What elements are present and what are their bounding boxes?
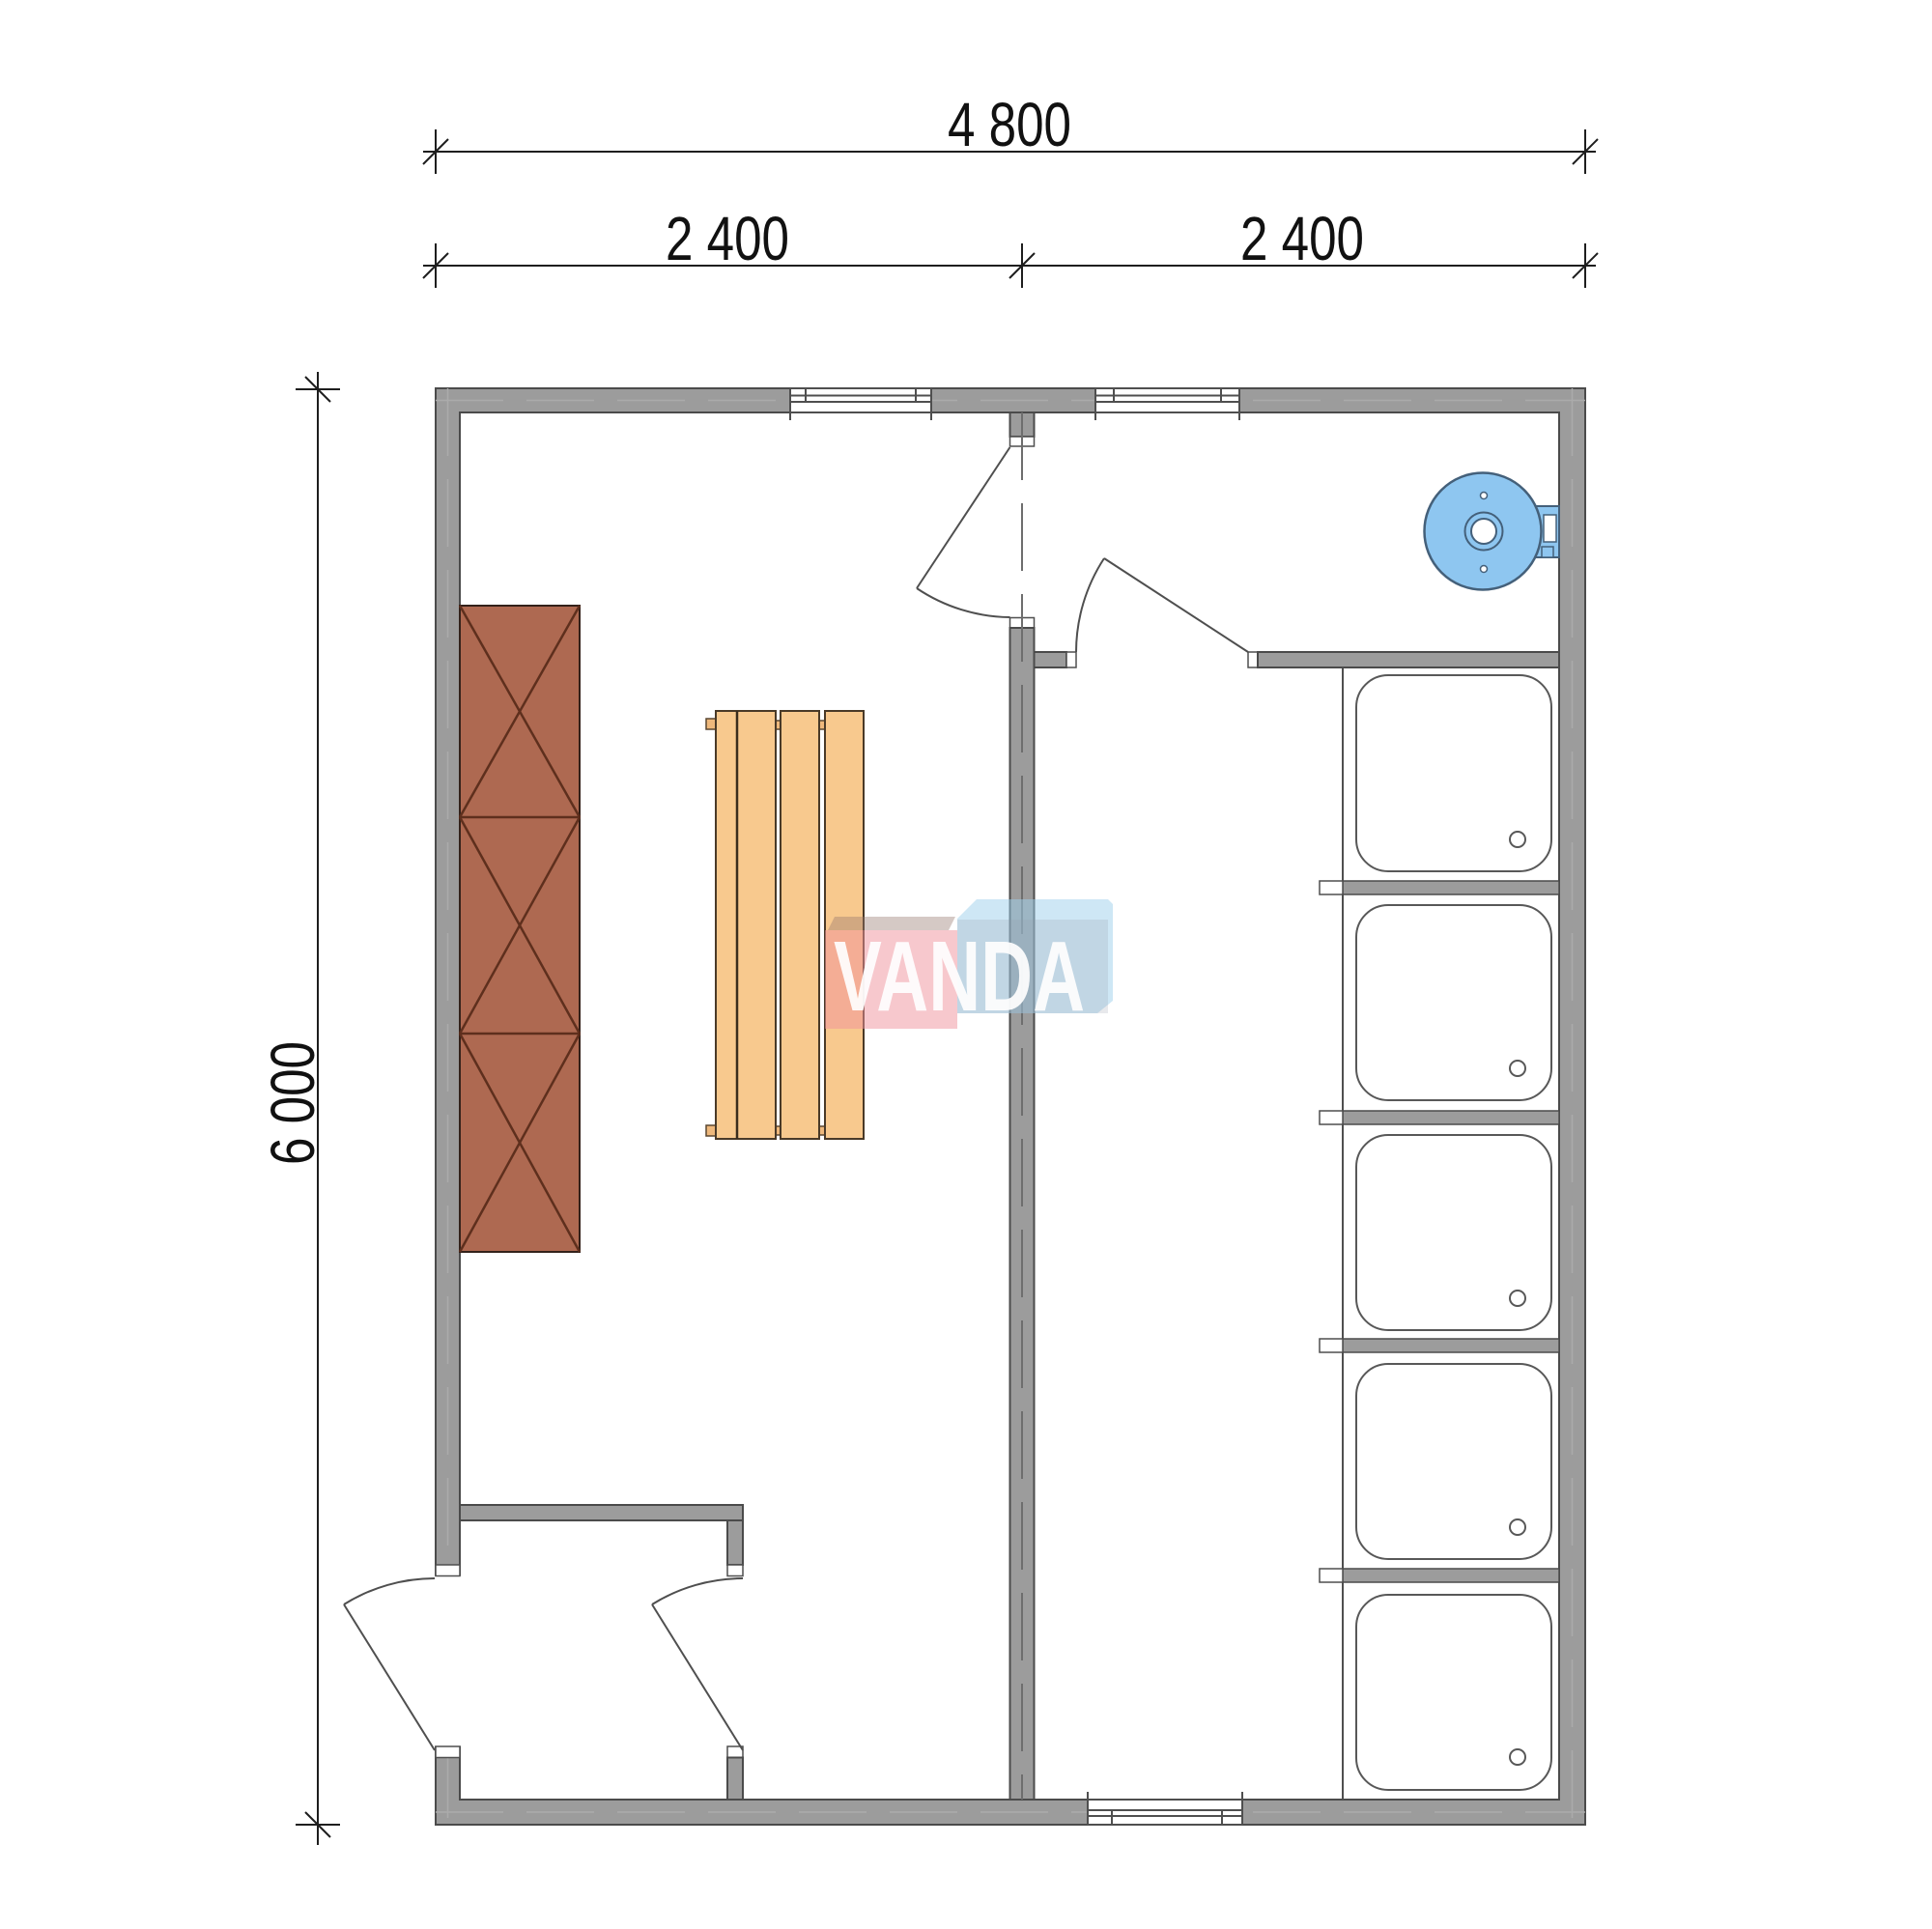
svg-text:2 400: 2 400	[666, 204, 789, 273]
svg-text:VANDA: VANDA	[834, 921, 1085, 1032]
svg-text:4 800: 4 800	[948, 90, 1071, 159]
svg-text:2 400: 2 400	[1240, 204, 1364, 273]
svg-text:6 000: 6 000	[258, 1041, 327, 1165]
